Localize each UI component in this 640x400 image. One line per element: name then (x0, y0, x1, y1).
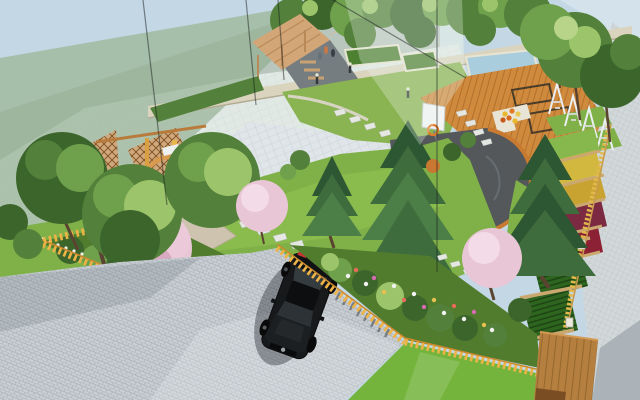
shrub-1 (460, 132, 476, 148)
landscape-render (0, 0, 640, 400)
shrub-2 (443, 143, 461, 161)
render-canvas (0, 0, 640, 400)
timber-platform (534, 332, 598, 400)
orange-flower-bush (426, 159, 440, 173)
fence-post-cap-2 (566, 318, 573, 327)
